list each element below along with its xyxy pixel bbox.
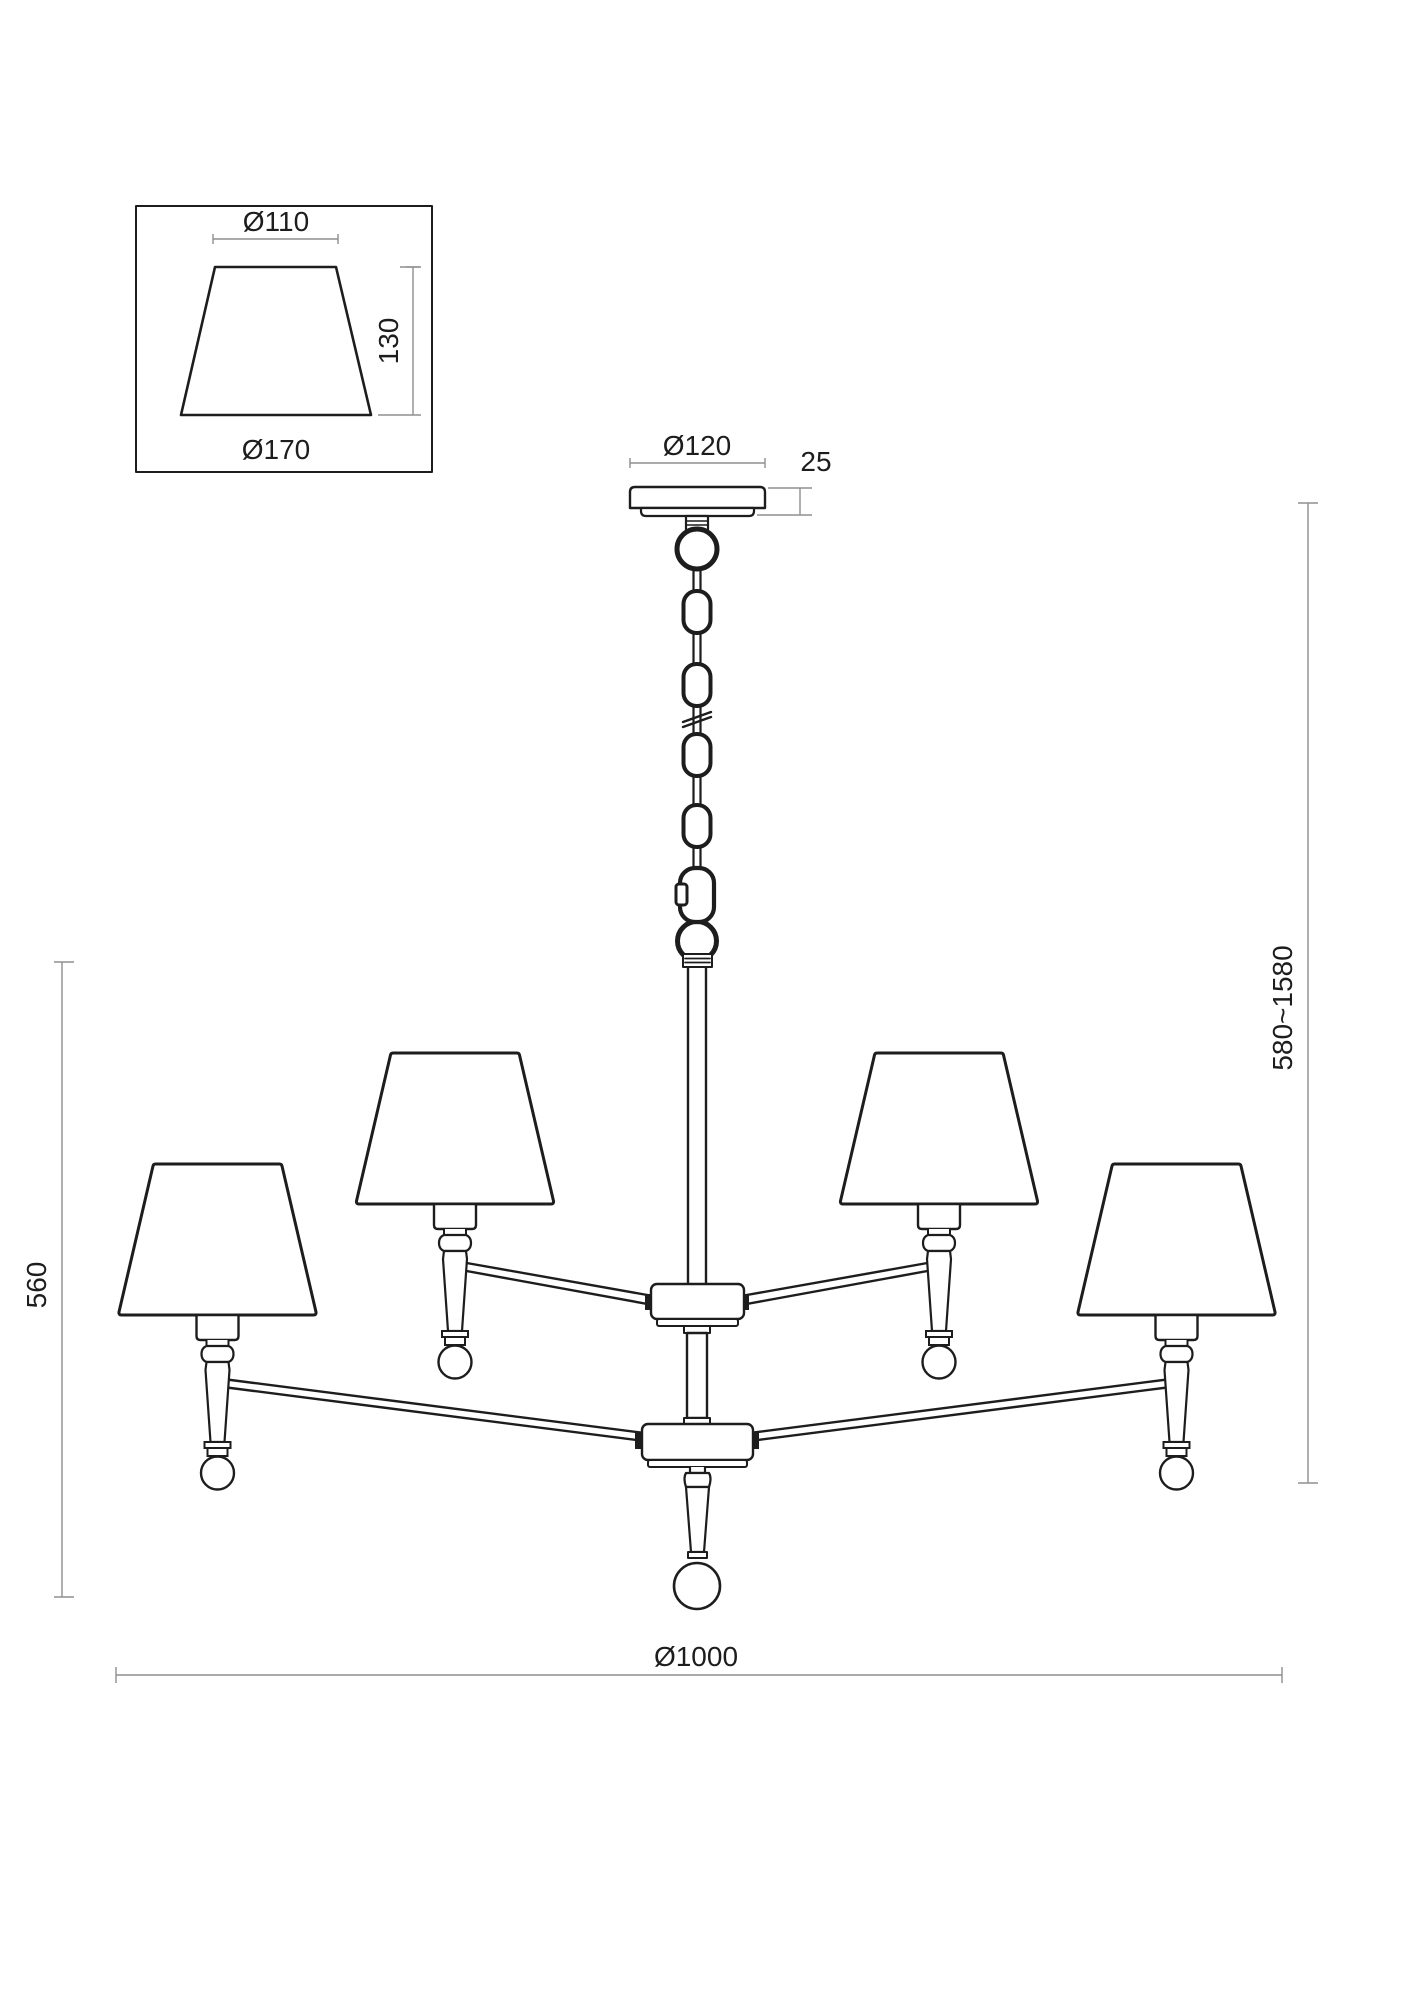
shade-profile bbox=[181, 267, 371, 415]
lower-hub bbox=[642, 1424, 753, 1460]
drawing-canvas: Ø110 130 Ø170 bbox=[0, 0, 1413, 2000]
ring-collar bbox=[683, 954, 712, 967]
body-height-dimension: 560 bbox=[21, 962, 74, 1597]
shade-bottom-diameter-label: Ø170 bbox=[242, 434, 311, 465]
shade-height-dimension: 130 bbox=[373, 267, 421, 415]
canopy-diameter-dimension: Ø120 bbox=[630, 430, 765, 468]
shade-top-dimension: Ø110 bbox=[213, 206, 338, 244]
spread-diameter-label: Ø1000 bbox=[654, 1641, 738, 1672]
canopy-thickness-dimension: 25 bbox=[757, 446, 832, 515]
lamp-inner-left bbox=[356, 1053, 553, 1379]
canopy-ring bbox=[677, 529, 717, 569]
spread-diameter-dimension: Ø1000 bbox=[116, 1641, 1282, 1683]
carabiner-link bbox=[676, 868, 714, 922]
canopy-thickness-label: 25 bbox=[800, 446, 831, 477]
central-stem bbox=[635, 966, 759, 1609]
canopy-diameter-label: Ø120 bbox=[663, 430, 732, 461]
suspension-height-label: 580~1580 bbox=[1267, 945, 1298, 1070]
ceiling-canopy bbox=[630, 487, 765, 569]
lamp-outer-right bbox=[1078, 1164, 1275, 1490]
lamp-inner-right bbox=[840, 1053, 1037, 1379]
shade-detail-box: Ø110 130 Ø170 bbox=[136, 206, 432, 472]
chain-break-mark bbox=[683, 712, 711, 727]
shade-height-label: 130 bbox=[373, 318, 404, 365]
shade-top-diameter-label: Ø110 bbox=[243, 206, 309, 237]
upper-hub bbox=[651, 1284, 744, 1319]
suspension-chain bbox=[676, 556, 717, 967]
lamp-outer-left bbox=[119, 1164, 316, 1490]
bottom-finial bbox=[674, 1467, 720, 1609]
suspension-height-dimension: 580~1580 bbox=[1267, 503, 1318, 1483]
body-height-label: 560 bbox=[21, 1262, 52, 1309]
